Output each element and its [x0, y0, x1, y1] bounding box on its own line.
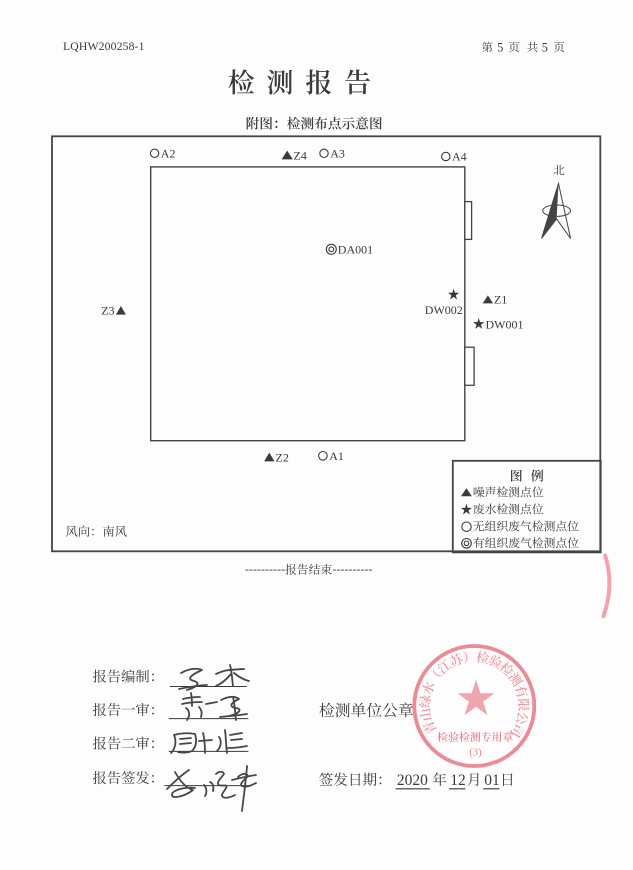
- svg-text:Z1: Z1: [494, 292, 507, 306]
- svg-text:A2: A2: [161, 147, 176, 161]
- svg-text:(3): (3): [469, 748, 482, 759]
- svg-text:DW001: DW001: [486, 318, 524, 332]
- svg-text:A1: A1: [329, 449, 344, 463]
- svg-text:01: 01: [484, 772, 500, 789]
- svg-text:Z3: Z3: [101, 304, 114, 318]
- svg-text:A4: A4: [452, 150, 467, 164]
- svg-text:DW002: DW002: [425, 303, 463, 317]
- svg-text:----------: ----------: [332, 562, 372, 576]
- svg-text:2020: 2020: [397, 772, 428, 789]
- svg-text:Z4: Z4: [294, 148, 307, 162]
- svg-text:5: 5: [542, 40, 548, 54]
- svg-text:DA001: DA001: [338, 243, 373, 257]
- svg-text:5: 5: [497, 40, 503, 54]
- svg-text:----------: ----------: [245, 562, 285, 576]
- svg-text:LQHW200258-1: LQHW200258-1: [63, 40, 145, 53]
- svg-text:A3: A3: [330, 147, 345, 161]
- svg-text:Z2: Z2: [276, 450, 289, 464]
- svg-text:12: 12: [450, 772, 466, 789]
